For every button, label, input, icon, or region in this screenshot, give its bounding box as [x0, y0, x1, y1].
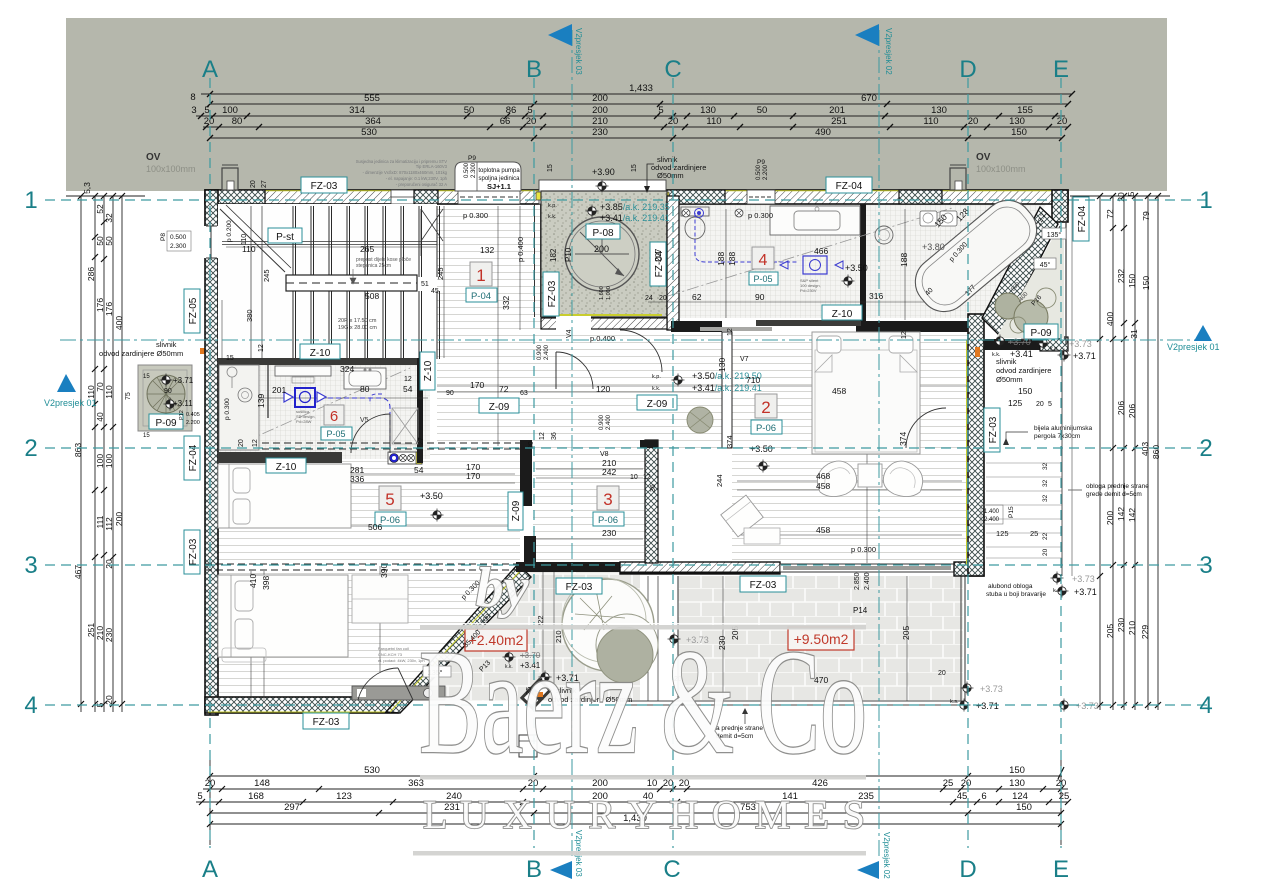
svg-text:- dimenzije VxŠxD: 870x1180x46: - dimenzije VxŠxD: 870x1180x460mm, 101kg: [363, 170, 448, 175]
svg-text:45: 45: [957, 791, 968, 802]
svg-text:403: 403: [1140, 442, 1150, 456]
svg-text:2.400: 2.400: [864, 572, 871, 590]
svg-text:+3.71: +3.71: [1074, 587, 1097, 597]
svg-text:FZ-04: FZ-04: [836, 181, 863, 192]
svg-text:- preporučeni osigurač 32 A: - preporučeni osigurač 32 A: [396, 182, 447, 187]
svg-text:FZ-05: FZ-05: [188, 297, 199, 324]
svg-text:15: 15: [631, 164, 638, 172]
svg-text:100: 100: [104, 454, 114, 468]
svg-text:506: 506: [368, 522, 382, 532]
svg-text:316: 316: [869, 291, 883, 301]
svg-text:410: 410: [248, 574, 258, 588]
svg-text:p 0.300: p 0.300: [463, 211, 488, 220]
svg-text:odvod zardinjere Ø50mm: odvod zardinjere Ø50mm: [99, 349, 183, 358]
svg-text:188: 188: [899, 253, 909, 267]
svg-text:D: D: [959, 856, 976, 883]
svg-text:466: 466: [814, 246, 828, 256]
svg-text:150: 150: [1011, 127, 1027, 138]
svg-text:toplotna pumpa: toplotna pumpa: [478, 168, 520, 174]
svg-text:490: 490: [815, 127, 831, 138]
svg-text:1: 1: [476, 266, 485, 285]
svg-text:200: 200: [114, 512, 124, 526]
svg-text:by: by: [476, 557, 530, 619]
svg-text:slivnik: slivnik: [156, 340, 177, 349]
svg-text:5: 5: [197, 791, 202, 802]
svg-text:62: 62: [692, 292, 702, 302]
svg-text:k.s.: k.s.: [950, 699, 959, 705]
svg-text:3: 3: [603, 490, 612, 509]
svg-text:25: 25: [1059, 791, 1070, 802]
svg-text:12: 12: [258, 344, 265, 352]
svg-text:5: 5: [527, 105, 532, 116]
svg-text:P-04: P-04: [471, 291, 491, 302]
svg-text:5: 5: [1126, 191, 1136, 196]
svg-text:467: 467: [73, 565, 83, 579]
svg-text:12: 12: [252, 439, 259, 447]
svg-text:130: 130: [700, 105, 716, 116]
svg-text:odvod zardinjere: odvod zardinjere: [996, 366, 1051, 375]
svg-text:2.300: 2.300: [471, 162, 477, 178]
svg-text:530: 530: [364, 765, 380, 776]
svg-text:p 0.400: p 0.400: [590, 334, 615, 343]
svg-text:148: 148: [254, 778, 270, 789]
svg-text:Z-10: Z-10: [832, 309, 853, 320]
svg-text:Z-09: Z-09: [511, 500, 522, 521]
svg-text:- el. napajanje: 0.1 kW,230V,: - el. napajanje: 0.1 kW,230V, 1ph: [386, 176, 448, 181]
svg-text:B: B: [526, 856, 542, 883]
svg-text:168: 168: [248, 791, 264, 802]
svg-text:458: 458: [816, 481, 830, 491]
svg-text:15: 15: [143, 433, 150, 439]
svg-text:0.500: 0.500: [170, 234, 187, 241]
svg-text:90: 90: [446, 390, 454, 397]
svg-text:Baerz & Co: Baerz & Co: [419, 619, 867, 785]
svg-text:20: 20: [938, 670, 946, 677]
svg-text:P-05: P-05: [326, 429, 345, 439]
svg-text:50: 50: [464, 105, 475, 116]
svg-text:176: 176: [104, 302, 114, 316]
svg-text:+3.11: +3.11: [173, 399, 193, 408]
svg-text:710: 710: [746, 375, 760, 385]
svg-text:32: 32: [1042, 462, 1049, 470]
svg-text:31: 31: [1129, 329, 1139, 339]
svg-text:297: 297: [284, 802, 300, 813]
svg-text:100: 100: [222, 105, 238, 116]
svg-text:863: 863: [73, 443, 83, 457]
svg-text:20R x 17.50 cm: 20R x 17.50 cm: [338, 318, 377, 324]
svg-text:205: 205: [901, 626, 911, 640]
svg-text:6: 6: [330, 408, 338, 425]
svg-text:3: 3: [1199, 552, 1212, 579]
svg-text:1,433: 1,433: [629, 83, 653, 94]
svg-text:364: 364: [365, 116, 381, 127]
svg-text:100x100mm: 100x100mm: [146, 164, 196, 174]
svg-text:27: 27: [418, 437, 425, 445]
svg-text:245: 245: [262, 269, 271, 282]
svg-text:205: 205: [1105, 624, 1115, 638]
svg-text:FZ-03: FZ-03: [988, 416, 999, 443]
svg-text:k.k.: k.k.: [548, 214, 557, 220]
svg-text:374: 374: [725, 435, 734, 448]
svg-text:15: 15: [547, 164, 554, 172]
svg-text:19G x 28.00 cm: 19G x 28.00 cm: [338, 325, 377, 331]
svg-text:200: 200: [594, 244, 609, 254]
svg-text:+3.71: +3.71: [1073, 351, 1096, 361]
svg-text:188: 188: [716, 252, 726, 266]
svg-text:B: B: [526, 56, 542, 83]
svg-text:12: 12: [643, 474, 651, 481]
svg-text:2: 2: [761, 398, 770, 417]
svg-text:Z-10: Z-10: [310, 348, 331, 359]
svg-text:150: 150: [1016, 802, 1032, 813]
svg-text:V2presjek 01: V2presjek 01: [1167, 342, 1220, 352]
svg-text:Tip ERLA-160V3: Tip ERLA-160V3: [416, 164, 448, 169]
svg-text:P-05: P-05: [753, 274, 772, 284]
svg-text:86: 86: [506, 105, 517, 116]
svg-text:124: 124: [1012, 791, 1028, 802]
svg-text:20: 20: [526, 116, 537, 127]
svg-text:Pd=28W: Pd=28W: [296, 419, 312, 424]
svg-text:130: 130: [931, 105, 947, 116]
svg-text:230: 230: [1116, 618, 1126, 632]
svg-text:OV: OV: [146, 152, 161, 163]
svg-text:200: 200: [592, 105, 608, 116]
svg-text:5: 5: [204, 105, 209, 116]
svg-text:142: 142: [1127, 508, 1137, 522]
svg-text:207: 207: [654, 248, 663, 262]
svg-text:201: 201: [829, 105, 845, 116]
svg-text:8: 8: [190, 92, 195, 103]
svg-text:508: 508: [365, 291, 379, 301]
svg-text:72: 72: [499, 384, 509, 394]
svg-text:286: 286: [86, 267, 96, 281]
svg-text:20: 20: [1042, 548, 1049, 556]
svg-text:400: 400: [1105, 312, 1115, 326]
svg-text:FZ-03: FZ-03: [311, 181, 338, 192]
svg-text:20: 20: [659, 295, 667, 302]
svg-text:54: 54: [414, 465, 424, 475]
svg-text:1.600: 1.600: [599, 286, 605, 300]
svg-text:OV: OV: [976, 152, 991, 163]
svg-text:k.p.: k.p.: [1050, 346, 1059, 352]
svg-text:458: 458: [816, 525, 830, 535]
svg-text:Z-10: Z-10: [276, 462, 297, 473]
svg-text:2.200: 2.200: [763, 164, 769, 180]
svg-text:10: 10: [630, 474, 638, 481]
svg-text:6: 6: [981, 791, 986, 802]
svg-text:135°: 135°: [1047, 231, 1062, 239]
svg-text:244: 244: [715, 474, 724, 487]
svg-text:90: 90: [755, 292, 765, 302]
svg-text:P-st: P-st: [276, 232, 294, 243]
svg-text:12: 12: [539, 432, 546, 440]
svg-text:112: 112: [104, 517, 114, 531]
svg-text:+3.73: +3.73: [980, 684, 1003, 694]
svg-text:150: 150: [1009, 765, 1025, 776]
svg-text:5: 5: [385, 490, 394, 509]
svg-text:+3.90: +3.90: [592, 167, 615, 177]
svg-text:0.405: 0.405: [186, 412, 200, 418]
svg-text:stepenica 25cm: stepenica 25cm: [356, 263, 391, 269]
svg-text:A: A: [202, 56, 218, 83]
svg-text:FZ-04: FZ-04: [1077, 205, 1088, 232]
svg-text:72: 72: [1105, 209, 1115, 219]
svg-text:170: 170: [466, 471, 480, 481]
svg-text:40: 40: [95, 412, 105, 422]
svg-text:FZ-03: FZ-03: [188, 538, 199, 565]
svg-text:188: 188: [727, 252, 737, 266]
svg-text:P-06: P-06: [598, 515, 618, 526]
svg-text:P8: P8: [160, 233, 167, 241]
svg-text:245: 245: [436, 267, 445, 280]
svg-text:2.400: 2.400: [606, 414, 612, 430]
svg-text:alubond obloga: alubond obloga: [988, 583, 1033, 590]
svg-text:p 0.300: p 0.300: [748, 211, 773, 220]
svg-text:120: 120: [596, 384, 610, 394]
svg-text:20: 20: [1036, 401, 1044, 408]
svg-text:242: 242: [602, 467, 616, 477]
svg-text:182: 182: [549, 248, 558, 262]
svg-text:90: 90: [164, 388, 172, 395]
svg-text:123: 123: [336, 791, 352, 802]
svg-text:130: 130: [717, 358, 727, 372]
svg-text:2: 2: [24, 435, 37, 462]
svg-text:P9: P9: [468, 155, 476, 162]
svg-text:p 0.300: p 0.300: [224, 398, 231, 420]
svg-text:+3.73: +3.73: [1076, 701, 1099, 711]
svg-text:E: E: [1053, 56, 1069, 83]
svg-text:Z-09: Z-09: [489, 402, 510, 413]
svg-text:36: 36: [551, 432, 558, 440]
svg-text:SJ+1.1: SJ+1.1: [487, 182, 511, 191]
svg-text:+3.71: +3.71: [173, 376, 194, 385]
svg-text:FZ-03: FZ-03: [547, 280, 558, 307]
svg-text:25: 25: [1030, 529, 1038, 538]
svg-text:468: 468: [816, 471, 830, 481]
svg-text:4: 4: [759, 252, 768, 269]
svg-text:150: 150: [1141, 276, 1151, 290]
svg-text:50: 50: [757, 105, 768, 116]
svg-text:p 0.200: p 0.200: [226, 220, 233, 242]
svg-text:75: 75: [125, 392, 132, 400]
svg-text:FZ-03: FZ-03: [313, 717, 340, 728]
svg-text:3: 3: [191, 105, 196, 116]
svg-text:110: 110: [923, 116, 938, 127]
svg-text:51: 51: [421, 281, 429, 288]
svg-text:45°: 45°: [1040, 261, 1051, 269]
svg-text:15: 15: [226, 355, 234, 362]
svg-text:12: 12: [727, 328, 734, 336]
svg-text:374: 374: [898, 432, 908, 446]
svg-text:k.p.: k.p.: [548, 203, 557, 209]
svg-text:32: 32: [104, 213, 114, 223]
svg-text:D: D: [959, 56, 976, 83]
svg-text:860: 860: [1151, 445, 1161, 459]
svg-text:142: 142: [1116, 507, 1126, 521]
svg-text:150: 150: [1018, 386, 1032, 396]
svg-text:2.200: 2.200: [186, 420, 200, 426]
svg-text:458: 458: [832, 386, 846, 396]
svg-text:80: 80: [360, 384, 370, 394]
svg-text:110: 110: [706, 116, 721, 127]
svg-text:Ø50mm: Ø50mm: [657, 171, 684, 180]
svg-text:P-08: P-08: [592, 228, 614, 239]
svg-text:P-09: P-09: [1030, 328, 1052, 339]
svg-text:206: 206: [1116, 401, 1126, 415]
svg-text:p 0.400: p 0.400: [516, 237, 525, 262]
svg-text:32: 32: [1042, 479, 1049, 487]
svg-text:50: 50: [104, 236, 114, 246]
svg-text:P12: P12: [179, 410, 185, 420]
svg-text:P-06: P-06: [756, 423, 776, 434]
svg-text:2.850: 2.850: [854, 572, 861, 590]
svg-text:+3.71: +3.71: [976, 701, 999, 711]
svg-text:grede demit d=5cm: grede demit d=5cm: [1086, 491, 1142, 498]
svg-text:2.300: 2.300: [170, 243, 187, 250]
svg-text:79: 79: [1141, 211, 1151, 221]
svg-text:Parquetni fan coil: Parquetni fan coil: [378, 646, 409, 651]
svg-text:A: A: [202, 856, 218, 883]
svg-text:251: 251: [831, 116, 847, 127]
svg-text:150: 150: [1127, 274, 1137, 288]
svg-text:80: 80: [232, 116, 243, 127]
svg-text:200: 200: [1105, 511, 1115, 525]
svg-text:20: 20: [238, 439, 245, 447]
svg-text:p 0.300: p 0.300: [851, 545, 876, 554]
svg-text:36: 36: [650, 484, 657, 492]
svg-text:332: 332: [501, 296, 511, 310]
svg-text:45: 45: [431, 288, 439, 295]
svg-text:20: 20: [968, 116, 979, 127]
svg-text:232: 232: [1116, 269, 1126, 283]
svg-text:555: 555: [364, 93, 380, 104]
svg-text:0.900: 0.900: [599, 414, 605, 430]
svg-text:CNC-KCH 73: CNC-KCH 73: [378, 652, 403, 657]
svg-text:20: 20: [1057, 116, 1068, 127]
svg-text:V2presjek 02: V2presjek 02: [884, 28, 893, 75]
svg-text:12: 12: [404, 376, 412, 383]
svg-text:110: 110: [241, 234, 248, 245]
svg-text:22: 22: [1042, 532, 1049, 540]
svg-text:139: 139: [256, 394, 266, 408]
svg-text:Z-10: Z-10: [423, 360, 434, 381]
svg-text:obloga prednje strane: obloga prednje strane: [1086, 483, 1149, 490]
svg-text:230: 230: [592, 127, 608, 138]
svg-text:110: 110: [104, 385, 114, 399]
svg-text:20: 20: [250, 180, 257, 188]
svg-text:314: 314: [349, 105, 365, 116]
svg-text:24: 24: [645, 295, 653, 302]
svg-text:125: 125: [1008, 398, 1022, 408]
svg-text:530: 530: [361, 127, 377, 138]
svg-text:0.500: 0.500: [464, 162, 470, 178]
svg-text:1.000: 1.000: [606, 286, 612, 300]
svg-text:2.400: 2.400: [544, 344, 550, 360]
svg-text:V7: V7: [740, 356, 749, 363]
svg-text:25: 25: [943, 778, 954, 789]
svg-text:+3.50: +3.50: [420, 491, 443, 501]
svg-text:66: 66: [500, 116, 511, 127]
svg-text:Ø50mm: Ø50mm: [996, 375, 1023, 384]
svg-text:4: 4: [24, 692, 37, 719]
svg-text:100x100mm: 100x100mm: [976, 164, 1026, 174]
svg-text:210: 210: [592, 116, 608, 127]
svg-text:380: 380: [245, 309, 254, 322]
svg-text:k.p.: k.p.: [652, 374, 661, 380]
svg-text:slivnik: slivnik: [996, 357, 1017, 366]
svg-text:1.400: 1.400: [984, 509, 1000, 515]
svg-text:398: 398: [261, 576, 271, 590]
svg-text:1: 1: [1199, 187, 1212, 214]
svg-text:20: 20: [104, 695, 114, 705]
svg-text:32: 32: [1042, 494, 1049, 502]
svg-text:5: 5: [658, 105, 663, 116]
svg-text:125: 125: [996, 529, 1009, 538]
svg-text:stuba u boji bravarije: stuba u boji bravarije: [986, 591, 1046, 598]
svg-text:230: 230: [104, 628, 114, 642]
svg-text:27: 27: [261, 180, 268, 188]
svg-text:400: 400: [114, 316, 124, 330]
svg-text:+3.73: +3.73: [1072, 574, 1095, 584]
svg-text:15: 15: [143, 374, 150, 380]
svg-text:P-06: P-06: [380, 515, 400, 526]
svg-text:63: 63: [520, 390, 528, 397]
svg-text:P14: P14: [853, 606, 868, 615]
svg-text:3: 3: [24, 552, 37, 579]
svg-text:V2presjek 03: V2presjek 03: [574, 28, 583, 75]
svg-text:+3.50: +3.50: [845, 263, 868, 273]
svg-text:Pd=230V: Pd=230V: [800, 288, 817, 293]
svg-text:130: 130: [1009, 778, 1025, 789]
svg-text:170: 170: [470, 380, 484, 390]
svg-text:+3.41/a.k. 219.41: +3.41/a.k. 219.41: [600, 213, 670, 223]
svg-text:P9: P9: [757, 159, 765, 166]
svg-text:336: 336: [350, 474, 364, 484]
svg-text:bijela aluminijumska: bijela aluminijumska: [1034, 425, 1093, 432]
svg-text:+3.50: +3.50: [750, 444, 773, 454]
svg-text:FZ-03: FZ-03: [750, 580, 777, 591]
svg-text:20: 20: [104, 559, 114, 569]
svg-text:0.900: 0.900: [537, 344, 543, 360]
svg-text:V2presjek 02: V2presjek 02: [882, 832, 891, 879]
svg-text:+3.70: +3.70: [1008, 337, 1031, 347]
svg-text:+3.80: +3.80: [922, 242, 945, 252]
svg-text:230: 230: [602, 528, 616, 538]
svg-text:2: 2: [1199, 435, 1212, 462]
svg-text:V8: V8: [600, 451, 609, 458]
svg-text:229: 229: [1140, 625, 1150, 639]
svg-text:130: 130: [1009, 116, 1025, 127]
svg-text:54: 54: [403, 384, 413, 394]
svg-text:el. podaci: 4kW, 230v, 1ph: el. podaci: 4kW, 230v, 1ph: [378, 658, 425, 663]
svg-text:206: 206: [1127, 404, 1137, 418]
svg-text:4: 4: [1199, 692, 1212, 719]
svg-text:pergola 7x30cm: pergola 7x30cm: [1034, 433, 1080, 440]
svg-text:C: C: [663, 856, 680, 883]
svg-text:Z-09: Z-09: [647, 399, 668, 410]
svg-text:20: 20: [961, 778, 972, 789]
svg-text:200: 200: [592, 93, 608, 104]
svg-text:5,3: 5,3: [82, 182, 92, 194]
svg-text:210: 210: [1127, 621, 1137, 635]
svg-text:52: 52: [95, 204, 105, 214]
svg-text:265: 265: [360, 244, 374, 254]
svg-text:132: 132: [480, 245, 494, 255]
svg-text:20: 20: [204, 116, 215, 127]
svg-text:324: 324: [340, 364, 354, 374]
svg-text:155: 155: [1017, 105, 1033, 116]
svg-text:+3.85/a.k. 219.35: +3.85/a.k. 219.35: [600, 202, 670, 212]
